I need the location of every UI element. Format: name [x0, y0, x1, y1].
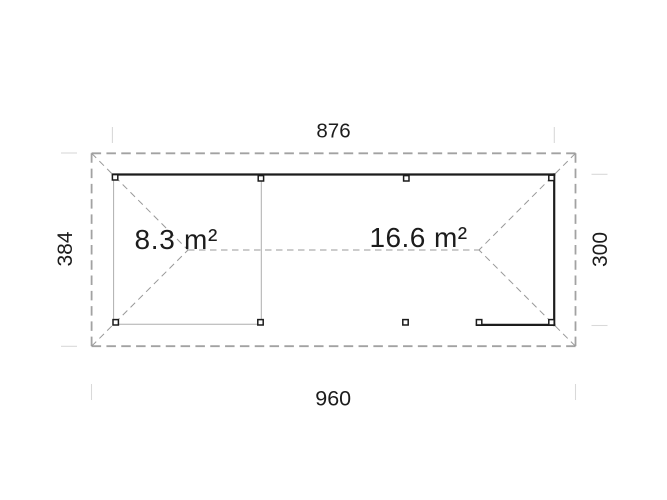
svg-text:300: 300 [589, 232, 612, 267]
svg-text:876: 876 [316, 119, 350, 142]
svg-text:384: 384 [54, 231, 77, 266]
svg-text:960: 960 [315, 387, 351, 411]
svg-text:16.6 m²: 16.6 m² [370, 222, 468, 253]
svg-text:8.3 m²: 8.3 m² [135, 224, 219, 255]
